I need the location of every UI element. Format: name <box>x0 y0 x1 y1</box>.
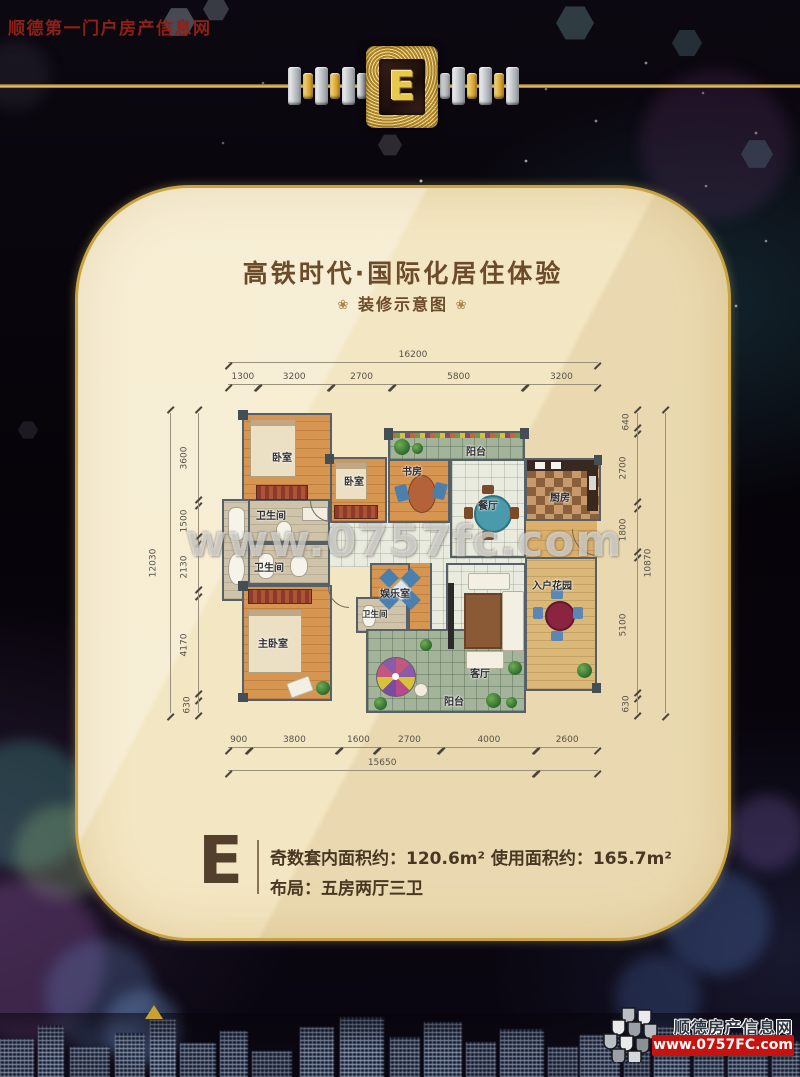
plant <box>316 681 330 695</box>
dim-left-total: 12030 <box>156 413 171 713</box>
dim-value: 2700 <box>331 372 393 382</box>
chain-band-left <box>288 66 367 106</box>
room-label: 卧室 <box>272 449 292 464</box>
chaise <box>286 675 314 698</box>
wall-column <box>594 455 602 465</box>
room-balcony-top <box>388 431 525 461</box>
dim-value: 16200 <box>228 350 598 360</box>
dim-top-total: 16200 <box>228 348 598 363</box>
flower-box <box>390 433 522 438</box>
plant <box>374 697 387 710</box>
watermark-text: www.0757fc.com <box>186 516 622 567</box>
room-bedroom-2 <box>330 457 387 523</box>
room-label: 餐厅 <box>478 497 498 512</box>
garden-table <box>545 601 575 631</box>
dim-value: 5800 <box>392 372 524 382</box>
sofa <box>468 573 510 590</box>
chair <box>533 607 543 619</box>
room-label: 厨房 <box>550 489 570 504</box>
dim-value: 900 <box>228 735 249 745</box>
dim-value: 10870 <box>644 549 654 578</box>
stove <box>589 476 596 490</box>
room-label: 书房 <box>402 463 422 478</box>
poster: 顺德第一门户房产信息网 E 高铁时代·国际化居住体验 ❀ 装修示意图 ❀ 162… <box>0 0 800 1077</box>
room-label: 客厅 <box>470 665 490 680</box>
dim-bottom-segments: 900 3800 1600 2700 4000 2600 <box>228 733 598 748</box>
chair <box>482 485 494 494</box>
dim-value: 3200 <box>258 372 331 382</box>
unit-letter: E <box>198 828 243 894</box>
side-table <box>414 683 428 697</box>
plant <box>420 639 432 651</box>
dim-value: 4170 <box>180 634 190 657</box>
wardrobe <box>256 485 308 500</box>
tv-cabinet <box>448 583 454 649</box>
ornament-icon: ❀ <box>338 298 351 313</box>
parasol-center <box>392 673 399 680</box>
star-field <box>0 0 2 2</box>
dim-right-segments: 640 2700 1800 5100 630 <box>623 413 638 713</box>
plant <box>508 661 522 675</box>
dim-value: 630 <box>182 697 192 714</box>
emblem-letter: E <box>388 64 415 110</box>
plant <box>506 697 517 708</box>
sofa <box>502 591 524 651</box>
sink <box>535 462 545 469</box>
bokeh-circle <box>730 795 800 870</box>
unit-emblem: E <box>366 46 438 128</box>
wall-column <box>238 693 248 702</box>
room-label: 卧室 <box>344 473 364 488</box>
dim-value: 2600 <box>536 735 598 745</box>
dim-value: 12030 <box>149 549 159 578</box>
footer-url-banner: www.0757FC.com <box>652 1035 794 1056</box>
plant <box>412 443 423 454</box>
dim-right-total: 10870 <box>651 413 666 713</box>
room-label: 阳台 <box>466 443 486 458</box>
dim-value: 3800 <box>249 735 339 745</box>
chair <box>432 482 448 501</box>
dim-value: 640 <box>621 413 631 430</box>
wall-column <box>520 428 529 439</box>
rug <box>464 593 502 649</box>
dim-value: 3200 <box>525 372 598 382</box>
wall-column <box>384 428 393 440</box>
chain-band-right <box>440 66 519 106</box>
chair <box>394 484 410 503</box>
room-label: 主卧室 <box>258 635 288 650</box>
dim-value: 1600 <box>339 735 377 745</box>
bed <box>250 419 296 477</box>
ornament-icon: ❀ <box>456 298 469 313</box>
plant <box>394 439 410 455</box>
room-label: 娱乐室 <box>380 585 410 600</box>
card-title: 高铁时代·国际化居住体验 <box>78 254 728 290</box>
wall-column <box>238 410 248 420</box>
dim-value: 4000 <box>441 735 536 745</box>
wall-column <box>238 581 248 591</box>
dim-top-segments: 1300 3200 2700 5800 3200 <box>228 370 598 385</box>
chair <box>551 631 563 641</box>
area-info-line: 奇数套内面积约：120.6m² 使用面积约：165.7m² <box>270 844 672 869</box>
dim-value: 15650 <box>228 758 536 768</box>
floorplan-card: 高铁时代·国际化居住体验 ❀ 装修示意图 ❀ 16200 1300 3200 2… <box>75 185 731 941</box>
wardrobe <box>248 589 312 604</box>
plant <box>577 663 592 678</box>
floor-plan: 16200 1300 3200 2700 5800 3200 12030 360… <box>148 348 668 788</box>
emblem-inner-plate: E <box>379 59 425 115</box>
dim-value: 1300 <box>228 372 258 382</box>
card-subtitle: ❀ 装修示意图 ❀ <box>78 291 728 315</box>
room-label: 阳台 <box>444 693 464 708</box>
info-divider <box>257 840 259 894</box>
gold-spire-icon <box>145 1005 163 1019</box>
plant <box>486 693 501 708</box>
card-subtitle-text: 装修示意图 <box>358 295 448 314</box>
dim-value: 5100 <box>619 614 629 637</box>
room-label: 卫生间 <box>362 608 388 620</box>
dim-value: 2700 <box>619 456 629 479</box>
footer-logo: 顺德房产信息网 www.0757FC.com <box>596 1006 796 1064</box>
sink <box>551 462 561 469</box>
dim-value: 3600 <box>180 446 190 469</box>
dim-value: 2700 <box>377 735 441 745</box>
dim-bottom-total: 15650 <box>228 756 598 771</box>
layout-info-line: 布局：五房两厅三卫 <box>270 874 423 899</box>
room-label: 入户花园 <box>532 577 572 592</box>
wall-column <box>592 683 601 693</box>
chair <box>573 607 583 619</box>
wall-column <box>325 454 334 464</box>
site-name-text: 顺德第一门户房产信息网 <box>8 14 212 39</box>
dim-value: 630 <box>621 696 631 713</box>
